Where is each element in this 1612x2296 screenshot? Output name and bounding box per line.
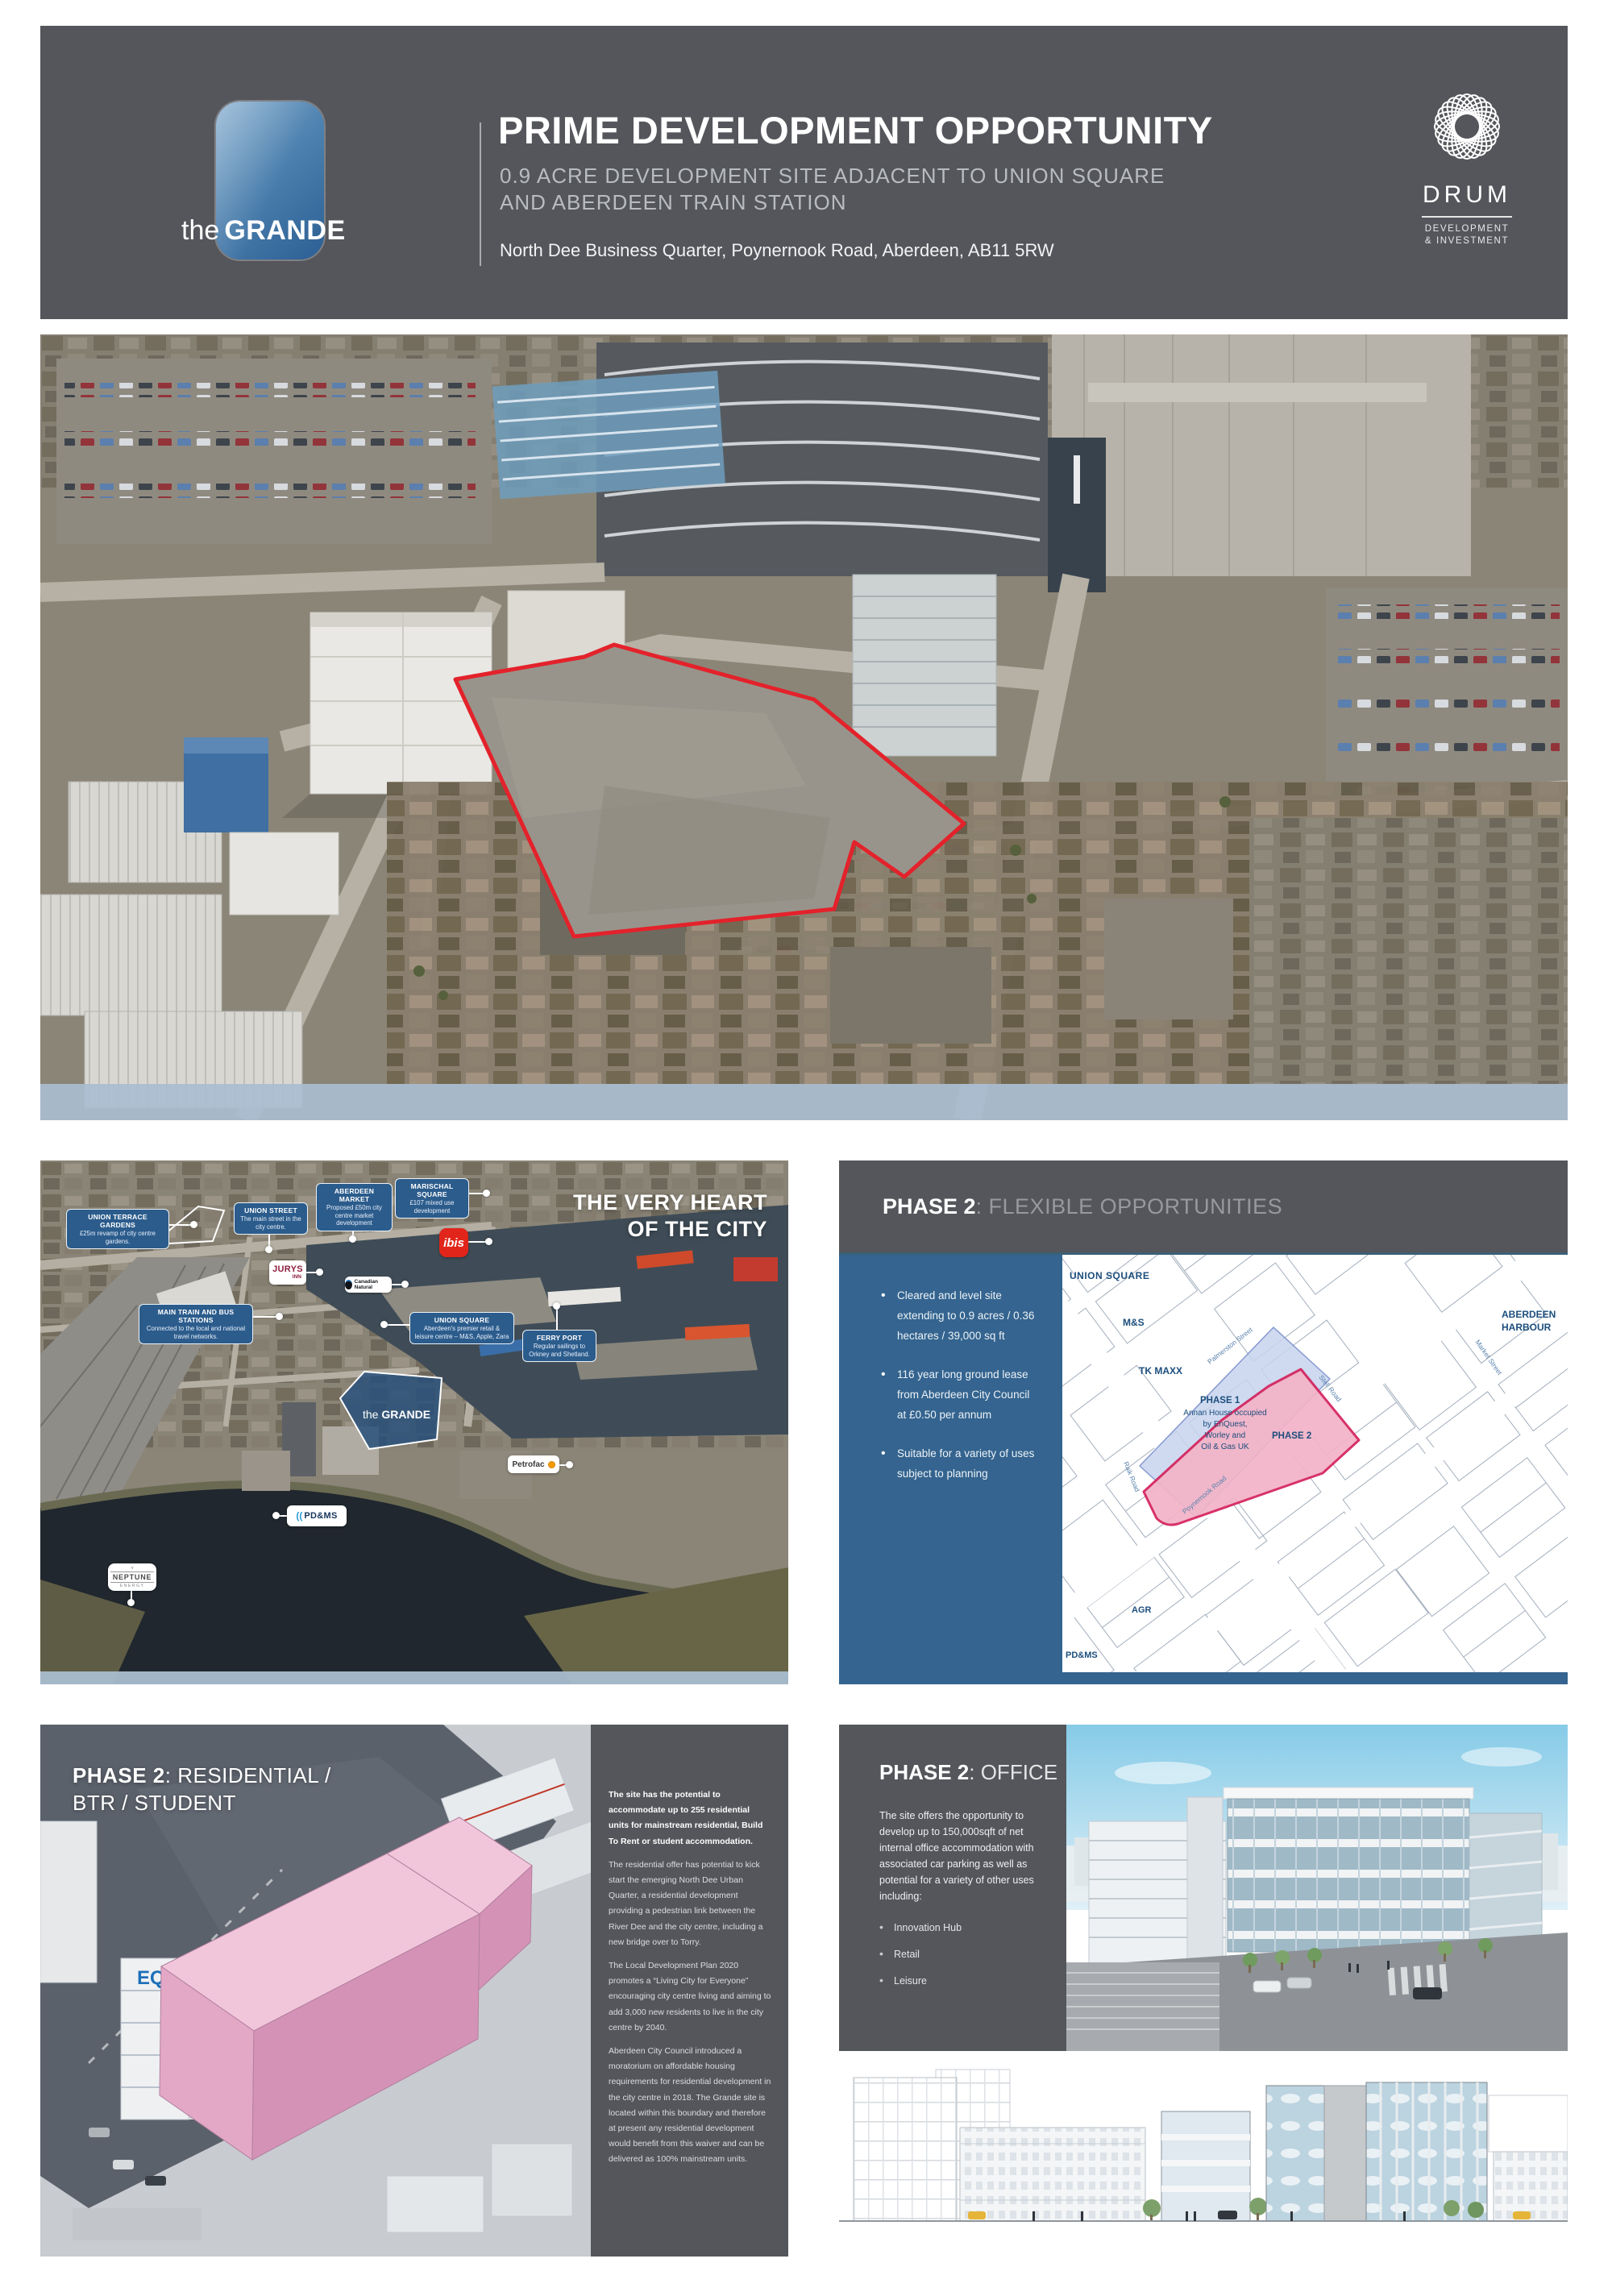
drum-tagline: DEVELOPMENT & INVESTMENT xyxy=(1402,223,1531,247)
canadian-natural-icon xyxy=(345,1280,352,1289)
connector-dot xyxy=(380,1321,388,1328)
drum-logo: DRUM DEVELOPMENT & INVESTMENT xyxy=(1402,82,1531,247)
bullet-item: Leisure xyxy=(879,1975,1039,1987)
map-label-union-square: UNION SQUARE Aberdeen's premier retail &… xyxy=(409,1312,514,1344)
petrofac-drop-icon xyxy=(548,1461,555,1468)
phase2-label: PHASE 2 xyxy=(1272,1431,1311,1441)
phase2-flexible-section: PHASE 2: FLEXIBLE OPPORTUNITIES Cleared … xyxy=(839,1160,1568,1684)
connector-dot xyxy=(349,1235,356,1243)
connector-dot xyxy=(265,1246,272,1253)
phase2-flexible-heading: PHASE 2: FLEXIBLE OPPORTUNITIES xyxy=(883,1194,1282,1219)
residential-paragraph-lead: The site has the potential to accommodat… xyxy=(609,1787,772,1850)
connector-dot xyxy=(272,1512,280,1519)
map-label-aberdeen-market: ABERDEEN MARKET Proposed £50m city centr… xyxy=(316,1183,393,1231)
site-plan-illust: UNION SQUARE M&S TK MAXX ABERDEEN HARBOU… xyxy=(1062,1255,1568,1672)
header: theGRANDE PRIME DEVELOPMENT OPPORTUNITY … xyxy=(40,26,1568,319)
city-centre-photo: the GRANDE THE VERY HEART OF THE CITY UN… xyxy=(40,1160,788,1684)
canadian-natural-logo: Canadian Natural xyxy=(345,1277,392,1293)
page-subtitle: 0.9 ACRE DEVELOPMENT SITE ADJACENT TO UN… xyxy=(500,163,1165,216)
phase2-flexible-header: PHASE 2: FLEXIBLE OPPORTUNITIES xyxy=(839,1160,1568,1255)
map-place-harbour-2: HARBOUR xyxy=(1502,1322,1552,1333)
bullet-item: Innovation Hub xyxy=(879,1922,1039,1934)
residential-text-panel: The site has the potential to accommodat… xyxy=(591,1725,788,2257)
pdms-arcs-icon: (( xyxy=(296,1510,302,1522)
brochure-page: theGRANDE PRIME DEVELOPMENT OPPORTUNITY … xyxy=(0,0,1612,2296)
site-address: North Dee Business Quarter, Poynernook R… xyxy=(500,240,1054,261)
pdms-logo: (( PD&MS xyxy=(287,1505,347,1526)
drum-name: DRUM xyxy=(1402,181,1531,209)
connector-dot xyxy=(401,1281,409,1288)
bullet-item: Retail xyxy=(879,1949,1039,1961)
map-label-train-bus-stations: MAIN TRAIN AND BUS STATIONS Connected to… xyxy=(139,1304,253,1344)
phase1-desc-2: by EnQuest, xyxy=(1203,1420,1247,1429)
elevation-illust xyxy=(839,2063,1568,2257)
residential-paragraph: The Local Development Plan 2020 promotes… xyxy=(609,1958,772,2036)
map-place-harbour-1: ABERDEEN xyxy=(1502,1309,1556,1320)
grande-site-label: the GRANDE xyxy=(363,1408,430,1421)
grande-logo: theGRANDE xyxy=(216,102,324,259)
subtitle-line2: AND ABERDEEN TRAIN STATION xyxy=(500,189,1165,216)
map-label-union-terrace-gardens: UNION TERRACE GARDENS £25m revamp of cit… xyxy=(66,1209,169,1249)
drum-rule xyxy=(1422,216,1512,218)
aerial-photo-site xyxy=(40,334,1568,1120)
connector-dot xyxy=(483,1190,490,1197)
header-divider xyxy=(480,122,481,266)
residential-paragraph: Aberdeen City Council introduced a morat… xyxy=(609,2044,772,2168)
map-label-union-street: UNION STREET The main street in the city… xyxy=(234,1202,308,1235)
phase2-office-heading: PHASE 2: OFFICE xyxy=(879,1760,1039,1785)
bullet-item: Suitable for a variety of uses subject t… xyxy=(881,1443,1040,1484)
residential-paragraph: The residential offer has potential to k… xyxy=(609,1858,772,1950)
map-label-ferry-port: FERRY PORT Regular sailings to Orkney an… xyxy=(522,1330,596,1362)
phase2-flexible-bullets: Cleared and level site extending to 0.9 … xyxy=(839,1255,1062,1502)
phase1-desc-4: Oil & Gas UK xyxy=(1201,1443,1249,1451)
map-place-union-square: UNION SQUARE xyxy=(1070,1270,1149,1281)
logo-prefix: the xyxy=(181,215,219,246)
bullet-item: Cleared and level site extending to 0.9 … xyxy=(881,1285,1040,1346)
office-intro: The site offers the opportunity to devel… xyxy=(879,1808,1039,1904)
ibis-logo: ibis xyxy=(439,1228,468,1257)
connector-dot xyxy=(190,1221,197,1228)
phase2-residential-heading: PHASE 2: RESIDENTIAL / BTR / STUDENT xyxy=(73,1762,331,1816)
elevation-drawing xyxy=(839,2063,1568,2257)
phase2-office-section: PHASE 2: OFFICE The site offers the oppo… xyxy=(839,1725,1568,2257)
connector-dot xyxy=(553,1302,560,1310)
subtitle-line1: 0.9 ACRE DEVELOPMENT SITE ADJACENT TO UN… xyxy=(500,163,1165,189)
connector-dot xyxy=(127,1599,135,1606)
bullet-item: 116 year long ground lease from Aberdeen… xyxy=(881,1364,1040,1425)
neptune-energy-logo: ♆ NEPTUNE ENERGY xyxy=(108,1563,156,1591)
city-map-title: THE VERY HEART OF THE CITY xyxy=(573,1190,767,1243)
drum-rosette-icon xyxy=(1423,82,1511,171)
connector-dot xyxy=(566,1461,573,1468)
logo-name: GRANDE xyxy=(224,215,345,246)
office-render xyxy=(1066,1725,1568,2051)
connector-dot xyxy=(485,1238,492,1245)
connector-dot xyxy=(316,1268,323,1276)
map-label-marischal-square: MARISCHAL SQUARE £107 mixed use developm… xyxy=(395,1178,469,1219)
connector-line xyxy=(387,1324,409,1326)
map-place-agr: AGR xyxy=(1132,1605,1152,1615)
connector-dot xyxy=(276,1313,283,1320)
petrofac-logo: Petrofac xyxy=(508,1455,559,1473)
phase1-desc-1: Annan House occupied xyxy=(1183,1409,1266,1418)
phase2-residential-section: EQ PHASE 2: RESIDENTIAL xyxy=(40,1725,788,2257)
map-place-pdms: PD&MS xyxy=(1066,1650,1098,1660)
office-render-illust xyxy=(1066,1725,1568,2051)
phase1-desc-3: Worley and xyxy=(1205,1431,1245,1440)
map-place-tkmaxx: TK MAXX xyxy=(1139,1365,1182,1376)
page-title: PRIME DEVELOPMENT OPPORTUNITY xyxy=(498,108,1213,152)
office-text-panel: PHASE 2: OFFICE The site offers the oppo… xyxy=(839,1725,1066,2051)
map-place-ms: M&S xyxy=(1123,1317,1145,1328)
grande-logo-text: theGRANDE xyxy=(181,215,346,247)
jurys-inn-logo: JURYS INN xyxy=(269,1260,306,1285)
phase2-site-plan-map: UNION SQUARE M&S TK MAXX ABERDEEN HARBOU… xyxy=(1062,1255,1568,1672)
office-bullets: Innovation Hub Retail Leisure xyxy=(879,1922,1039,1987)
connector-line xyxy=(556,1309,558,1330)
aerial-photo-illustration xyxy=(40,334,1568,1120)
phase1-label: PHASE 1 xyxy=(1200,1396,1240,1405)
